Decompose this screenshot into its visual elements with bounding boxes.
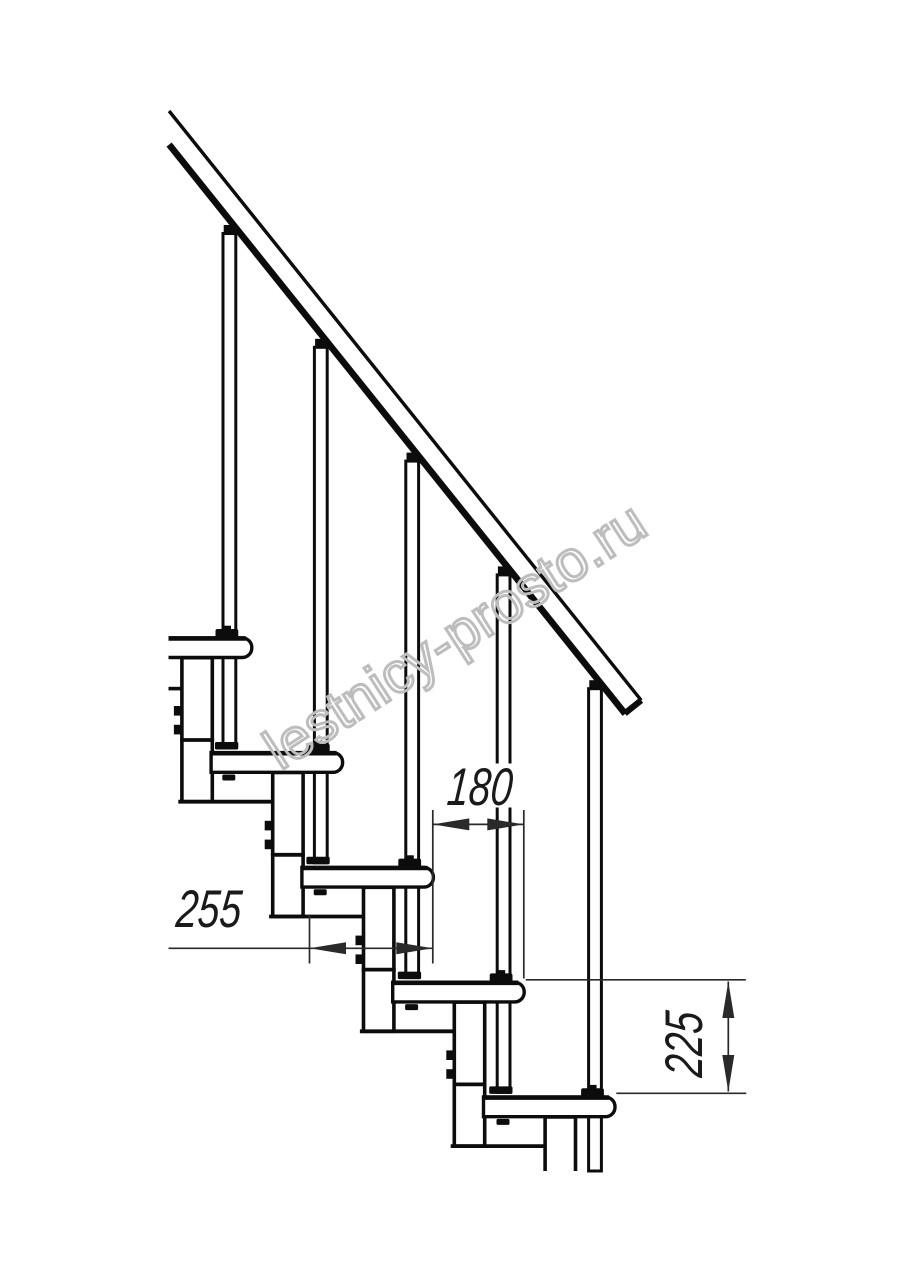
svg-text:225: 225	[654, 1008, 713, 1080]
svg-text:180: 180	[445, 757, 515, 816]
svg-text:255: 255	[173, 879, 245, 938]
